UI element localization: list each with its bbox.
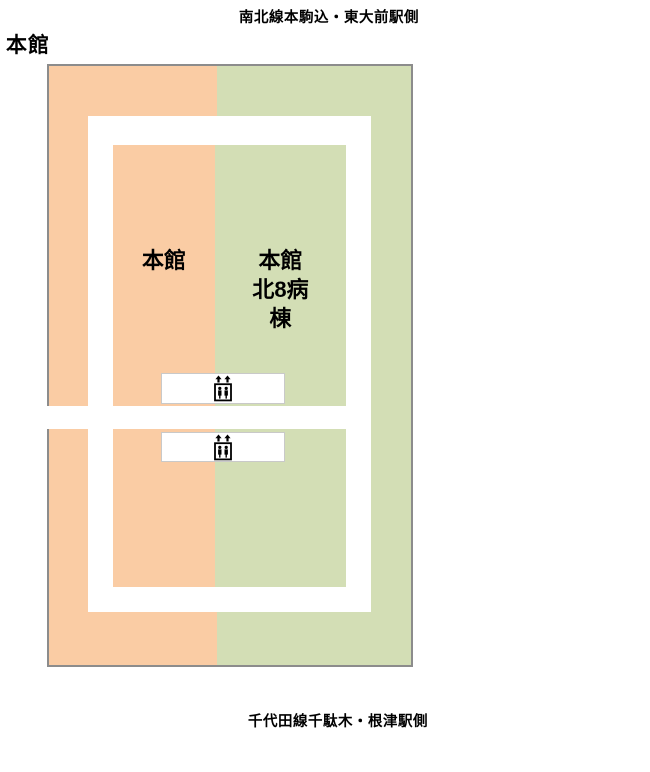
area-label-honkan: 本館 xyxy=(113,246,215,275)
north-side-caption: 南北線本駒込・東大前駅側 xyxy=(239,6,419,27)
area-label-line: 本館 xyxy=(215,246,346,275)
elevator-icon xyxy=(213,434,233,461)
area-label-honkan-kita8: 本館 北8病 棟 xyxy=(215,246,346,333)
inner-ward-block xyxy=(113,145,346,587)
building-outline: 本館 本館 北8病 棟 xyxy=(47,64,413,667)
floor-map-page: 本館 南北線本駒込・東大前駅側 本館 本館 北8病 棟 xyxy=(0,0,650,772)
area-label-line: 北8病 xyxy=(215,275,346,304)
south-side-caption: 千代田線千駄木・根津駅側 xyxy=(248,710,428,731)
page-title: 本館 xyxy=(6,29,50,59)
elevator-icon xyxy=(213,375,233,402)
corridor-passage xyxy=(0,406,371,429)
elevator-box-1 xyxy=(161,373,285,404)
elevator-box-2 xyxy=(161,432,285,462)
area-label-line: 棟 xyxy=(215,304,346,333)
